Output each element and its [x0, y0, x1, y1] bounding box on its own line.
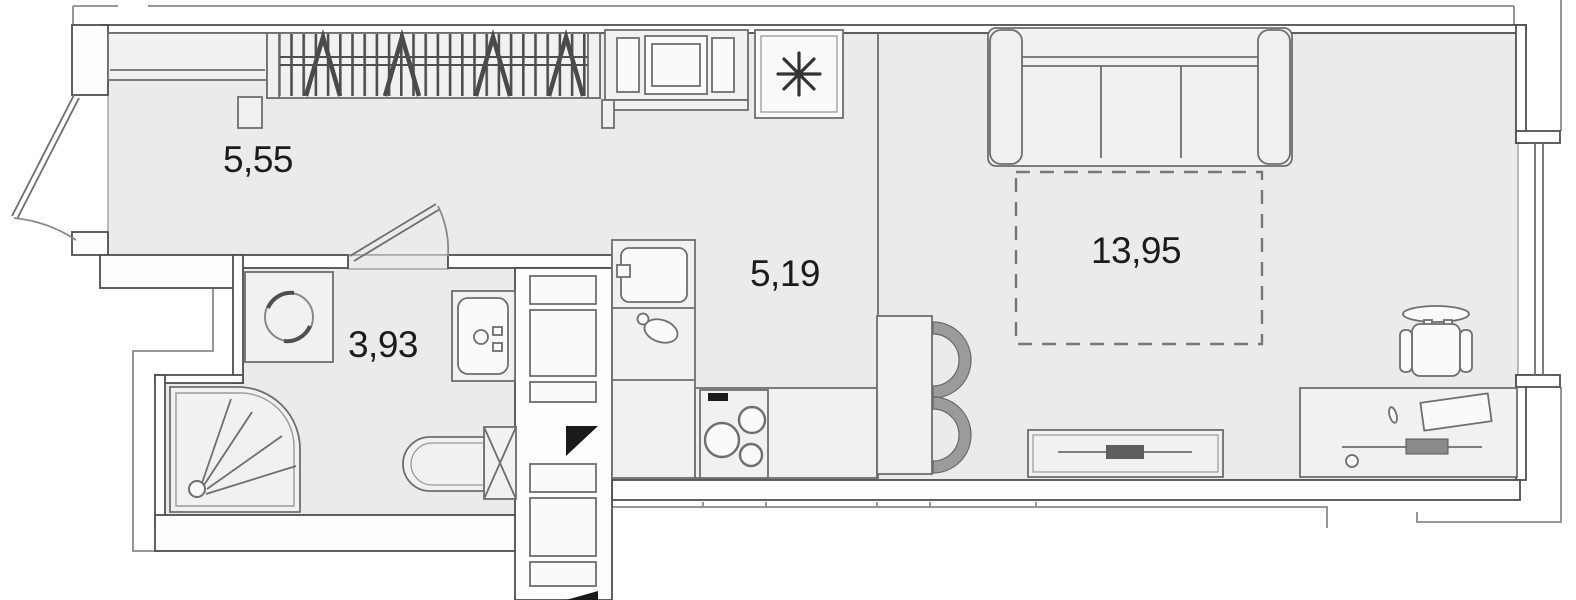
burner-large	[705, 423, 739, 457]
tv-stand	[1028, 430, 1223, 477]
bath-left-upper-wall	[233, 255, 243, 383]
burner-small	[740, 444, 762, 466]
bath-top-wall-right	[448, 255, 612, 268]
hall-cabinet	[108, 33, 267, 80]
fridge	[755, 30, 843, 118]
facade-top-line	[73, 6, 1514, 25]
chair-seat	[1412, 324, 1460, 376]
desk-chair	[1400, 306, 1472, 376]
stove-control	[708, 393, 728, 401]
floor-plan-page: 5,55 3,93 5,19 13,95	[0, 0, 1576, 600]
bathroom-sink	[452, 291, 515, 381]
bathroom-area-label: 3,93	[348, 324, 418, 365]
chair-armrest-right	[1460, 330, 1472, 372]
right-wall-upper	[1516, 25, 1526, 143]
kitchen-sink	[617, 248, 687, 302]
shower	[170, 387, 300, 512]
chair-armrest-left	[1400, 330, 1412, 372]
neighbor-bottom-line	[612, 502, 1327, 528]
stove	[700, 390, 768, 478]
snowflake-icon	[778, 53, 820, 95]
entrance-door-leaf	[12, 95, 79, 219]
bathroom-door-threshold	[348, 255, 448, 269]
sofa-armrest-right	[1258, 30, 1290, 164]
entrance-pier	[72, 25, 108, 95]
window-cap-top	[1516, 131, 1560, 143]
tv	[1106, 445, 1144, 459]
dining-table	[877, 316, 932, 474]
living-room-area-label: 13,95	[1091, 230, 1181, 271]
desk-dot	[1346, 455, 1358, 467]
wardrobe-foot	[238, 97, 262, 128]
chair-backrest	[1403, 306, 1469, 322]
entrance-door	[12, 95, 79, 240]
kitchen-area-label: 5,19	[750, 253, 820, 294]
entrance-door-swing-arc	[14, 218, 76, 240]
window-glass-lines	[1535, 143, 1543, 375]
hallway-area-label: 5,55	[223, 139, 293, 180]
duct-shaft	[515, 268, 612, 600]
burner-medium	[739, 407, 765, 433]
shower-drain	[189, 481, 205, 497]
window	[1535, 143, 1543, 375]
entrance-stub	[72, 232, 108, 255]
bath-bottom-wall	[155, 515, 520, 551]
kitchen-faucet-icon	[617, 265, 630, 277]
bath-jog-wall	[155, 375, 243, 383]
keyboard	[1406, 439, 1448, 454]
bottom-wall-main	[612, 480, 1520, 500]
bath-left-wall	[155, 375, 165, 523]
washing-machine	[245, 272, 333, 362]
floor-plan: 5,55 3,93 5,19 13,95	[0, 0, 1576, 600]
sofa-armrest-left	[990, 30, 1022, 164]
hallway-bottom-wall	[100, 255, 237, 288]
desk	[1300, 388, 1517, 477]
toilet-bowl	[403, 437, 484, 491]
sofa	[988, 28, 1292, 166]
bath-top-wall-left	[237, 255, 348, 268]
window-cap-bottom	[1516, 375, 1560, 387]
oven-leg	[602, 100, 614, 128]
sink-faucet-icon	[474, 330, 488, 344]
